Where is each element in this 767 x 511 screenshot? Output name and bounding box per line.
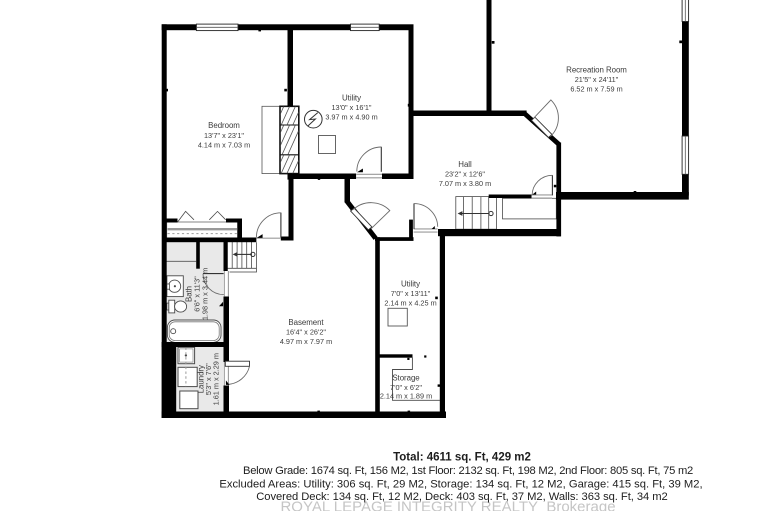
svg-text:3.97 m x 4.90 m: 3.97 m x 4.90 m	[325, 113, 377, 122]
svg-text:Basement: Basement	[288, 318, 324, 327]
svg-text:21'5" x 24'11": 21'5" x 24'11"	[575, 75, 619, 84]
svg-text:Hall: Hall	[458, 160, 472, 169]
svg-text:1.61 m x 2.29 m: 1.61 m x 2.29 m	[212, 353, 221, 405]
svg-text:Excluded Areas: Utility: 306 s: Excluded Areas: Utility: 306 sq. Ft, 29 …	[219, 478, 702, 490]
svg-text:2.14 m x 1.89 m: 2.14 m x 1.89 m	[380, 391, 432, 400]
svg-text:Covered Deck: 134 sq. Ft, 12 M: Covered Deck: 134 sq. Ft, 12 M2, Deck: 4…	[256, 491, 667, 503]
svg-text:1.98 m x 3.44 m: 1.98 m x 3.44 m	[201, 268, 210, 320]
svg-text:4.97 m x 7.97 m: 4.97 m x 7.97 m	[280, 337, 332, 346]
svg-text:13'7" x 23'1": 13'7" x 23'1"	[204, 131, 244, 140]
svg-text:6.52 m x 7.59 m: 6.52 m x 7.59 m	[570, 85, 622, 94]
svg-text:7'0" x 13'11": 7'0" x 13'11"	[391, 289, 431, 298]
svg-text:Below Grade: 1674 sq. Ft, 156: Below Grade: 1674 sq. Ft, 156 M2, 1st Fl…	[243, 465, 693, 477]
svg-text:2.14 m x 4.25 m: 2.14 m x 4.25 m	[384, 298, 436, 307]
svg-text:Recreation Room: Recreation Room	[566, 66, 627, 75]
svg-text:Bedroom: Bedroom	[208, 121, 240, 130]
svg-text:4.14 m x 7.03 m: 4.14 m x 7.03 m	[198, 140, 250, 149]
svg-text:23'2" x 12'6": 23'2" x 12'6"	[445, 170, 485, 179]
svg-text:7.07 m x 3.80 m: 7.07 m x 3.80 m	[439, 179, 491, 188]
svg-text:Utility: Utility	[401, 279, 420, 288]
svg-text:Utility: Utility	[342, 94, 361, 103]
svg-text:13'0" x 16'1": 13'0" x 16'1"	[331, 103, 371, 112]
svg-text:Storage: Storage	[392, 373, 420, 382]
svg-text:Total: 4611 sq. Ft, 429 m2: Total: 4611 sq. Ft, 429 m2	[393, 451, 531, 463]
svg-text:16'4" x 26'2": 16'4" x 26'2"	[286, 328, 326, 337]
